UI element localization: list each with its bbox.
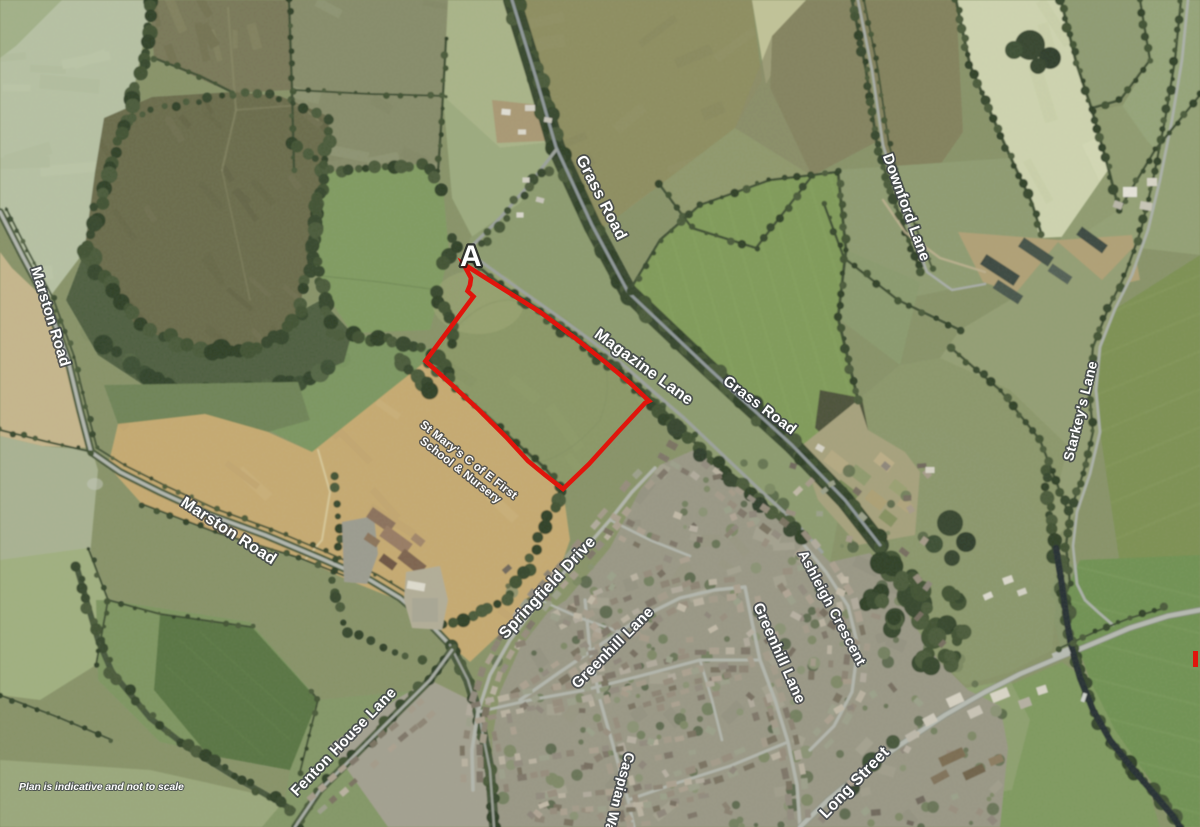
svg-text:A: A (460, 240, 482, 273)
svg-text:Plan is indicative and not to: Plan is indicative and not to scale (19, 782, 184, 793)
